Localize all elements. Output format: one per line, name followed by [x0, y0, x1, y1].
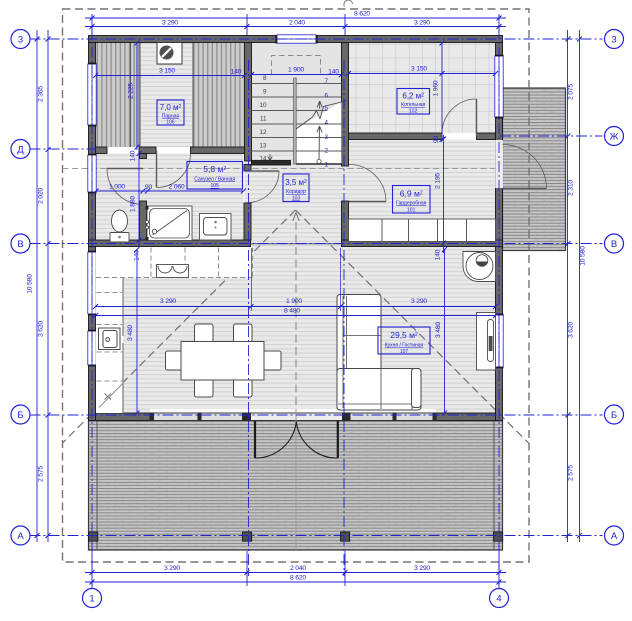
- svg-text:10 580: 10 580: [27, 274, 34, 294]
- svg-text:107: 107: [400, 349, 409, 355]
- svg-text:Котельная: Котельная: [401, 102, 425, 108]
- svg-text:6,2 м2: 6,2 м2: [402, 92, 424, 101]
- svg-text:140: 140: [328, 69, 339, 76]
- svg-text:6: 6: [325, 93, 329, 100]
- svg-text:1: 1: [89, 593, 94, 604]
- svg-text:8 620: 8 620: [354, 11, 370, 18]
- svg-text:2 040: 2 040: [290, 565, 306, 572]
- svg-text:Б: Б: [611, 410, 617, 421]
- svg-text:1: 1: [325, 162, 329, 169]
- svg-text:4: 4: [496, 593, 501, 604]
- svg-text:10: 10: [259, 102, 267, 109]
- svg-text:7,0 м2: 7,0 м2: [160, 103, 182, 112]
- svg-text:106: 106: [166, 120, 175, 126]
- svg-text:90: 90: [433, 136, 440, 144]
- svg-text:Коридор: Коридор: [286, 189, 306, 195]
- svg-text:140: 140: [134, 250, 141, 261]
- svg-text:6,9 м2: 6,9 м2: [400, 189, 423, 199]
- svg-text:Гардеробная: Гардеробная: [396, 201, 427, 207]
- svg-text:Б: Б: [17, 410, 23, 421]
- svg-text:Санузел / Ванная: Санузел / Ванная: [194, 177, 235, 183]
- svg-text:90: 90: [145, 184, 153, 191]
- svg-text:10 580: 10 580: [580, 246, 587, 266]
- svg-text:Кухня / Гостиная: Кухня / Гостиная: [385, 343, 424, 349]
- svg-text:1 900: 1 900: [288, 67, 304, 74]
- svg-text:140: 140: [231, 69, 242, 76]
- svg-text:1 880: 1 880: [130, 196, 137, 212]
- svg-text:2 060: 2 060: [168, 184, 184, 191]
- svg-text:2 195: 2 195: [435, 173, 442, 189]
- svg-text:8 480: 8 480: [284, 308, 300, 315]
- svg-text:3: 3: [611, 34, 616, 45]
- svg-text:1 000: 1 000: [109, 184, 125, 191]
- svg-text:8: 8: [263, 75, 267, 82]
- svg-text:5: 5: [325, 105, 329, 112]
- svg-text:3 290: 3 290: [162, 20, 178, 27]
- svg-text:А: А: [17, 531, 24, 542]
- svg-text:14: 14: [259, 156, 267, 163]
- svg-text:2 365: 2 365: [38, 86, 45, 102]
- svg-text:3 290: 3 290: [414, 565, 430, 572]
- svg-text:2 310: 2 310: [568, 180, 575, 196]
- svg-text:12: 12: [259, 129, 267, 136]
- svg-text:103: 103: [292, 196, 301, 202]
- svg-text:3 290: 3 290: [164, 565, 180, 572]
- svg-text:8 620: 8 620: [290, 575, 306, 582]
- svg-text:7: 7: [325, 78, 329, 85]
- svg-text:140: 140: [130, 150, 137, 161]
- svg-text:3 150: 3 150: [411, 66, 427, 73]
- svg-text:101: 101: [407, 208, 416, 214]
- svg-text:3 290: 3 290: [160, 298, 176, 305]
- svg-text:9: 9: [263, 89, 267, 96]
- svg-text:3,5 м2: 3,5 м2: [285, 178, 307, 187]
- svg-text:102: 102: [409, 109, 418, 115]
- svg-text:3: 3: [18, 34, 23, 45]
- svg-text:2 020: 2 020: [38, 188, 45, 204]
- svg-text:2 225: 2 225: [128, 83, 135, 99]
- svg-text:В: В: [611, 239, 617, 250]
- svg-text:5,8 м2: 5,8 м2: [203, 164, 226, 174]
- svg-text:13: 13: [259, 143, 267, 150]
- svg-text:Д: Д: [17, 144, 24, 155]
- svg-text:105: 105: [211, 183, 220, 189]
- svg-text:4: 4: [325, 120, 329, 127]
- svg-text:2 040: 2 040: [289, 20, 305, 27]
- svg-text:3 480: 3 480: [435, 322, 442, 338]
- svg-text:В: В: [17, 239, 23, 250]
- svg-text:Ж: Ж: [610, 131, 619, 142]
- svg-text:3 480: 3 480: [127, 325, 134, 341]
- svg-text:29,5 м2: 29,5 м2: [390, 330, 418, 340]
- svg-text:3 620: 3 620: [568, 322, 575, 338]
- svg-text:3 290: 3 290: [411, 298, 427, 305]
- svg-text:3 150: 3 150: [159, 68, 175, 75]
- svg-text:1 900: 1 900: [286, 298, 302, 305]
- svg-text:2 575: 2 575: [38, 466, 45, 482]
- svg-text:11: 11: [260, 116, 267, 123]
- svg-text:А: А: [611, 531, 618, 542]
- svg-text:3 290: 3 290: [414, 20, 430, 27]
- svg-text:2 575: 2 575: [568, 465, 575, 481]
- svg-text:3 620: 3 620: [38, 321, 45, 337]
- svg-text:2 075: 2 075: [568, 84, 575, 100]
- svg-text:2: 2: [325, 148, 329, 155]
- svg-text:1 960: 1 960: [433, 80, 440, 96]
- svg-text:3: 3: [325, 134, 329, 141]
- svg-text:140: 140: [435, 249, 442, 260]
